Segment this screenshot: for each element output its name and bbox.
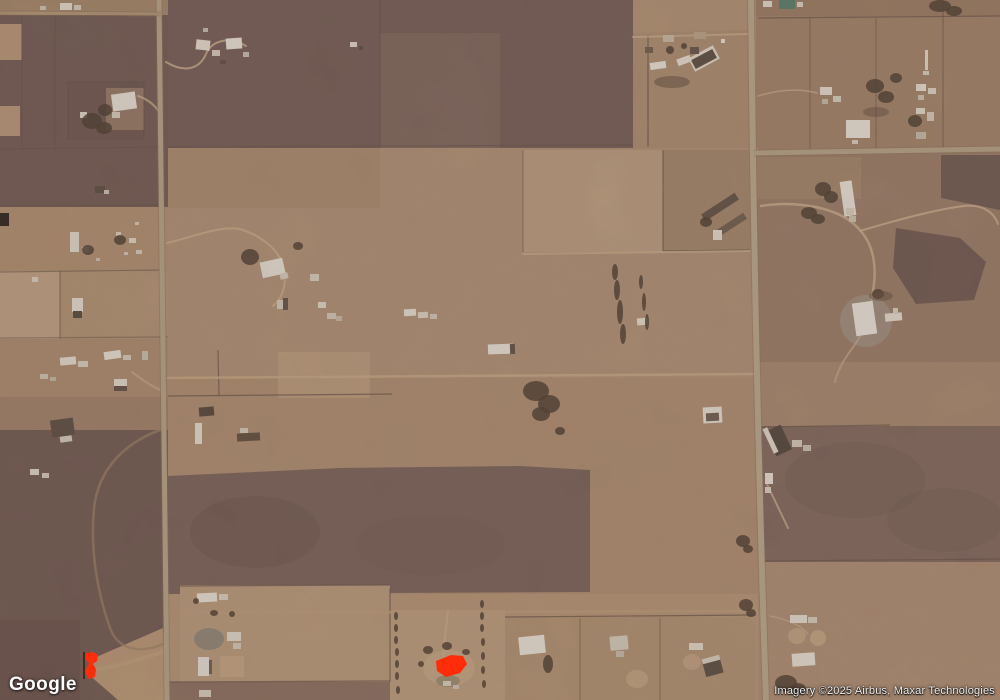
imagery-attribution: Imagery ©2025 Airbus, Maxar Technologies — [774, 685, 995, 697]
google-logo[interactable]: Google — [9, 674, 77, 696]
map-viewport[interactable]: Google Imagery ©2025 Airbus, Maxar Techn… — [0, 0, 1000, 700]
imagery-grain — [0, 0, 1000, 700]
satellite-imagery — [0, 0, 1000, 700]
imagery-noise — [0, 0, 1000, 700]
